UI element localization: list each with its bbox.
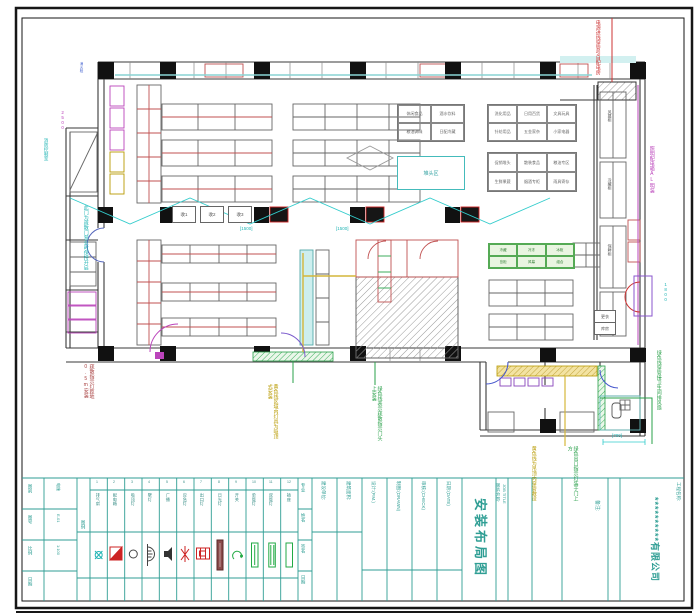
legend-name: 双管灯: [268, 493, 273, 529]
dimension-text: [1500]: [336, 226, 349, 231]
field-label: 建设单位:: [321, 481, 326, 500]
legend-no: 8: [218, 480, 220, 484]
legend-no: 3: [131, 480, 133, 484]
zone-cell: 针纺用品: [488, 123, 517, 141]
zone-cell: 日用百货: [517, 105, 546, 123]
annotation-green-right: 绿色线穿管接卫生间排风扇: [655, 350, 661, 445]
legend-name: 日光灯: [217, 493, 222, 529]
annotation-hydrant: 消火栓: [80, 62, 84, 78]
zone-cell: 散装食品: [517, 153, 546, 172]
legend-no: 2: [113, 480, 115, 484]
legend-name: 应急灯: [182, 493, 187, 529]
info-label: 比例: [28, 546, 33, 555]
annotation-yellow-a: 黄色线区域内灯具为吸顶式安装: [266, 384, 278, 442]
zone-cell: 休闲食品: [398, 105, 431, 123]
freezer-cell: 冰柜: [546, 244, 574, 256]
corridor-label: 冷藏柜: [607, 178, 612, 190]
freezer-cell: 冷藏: [489, 244, 517, 256]
service-lines: [70, 18, 652, 446]
freezer-cell: 冷冻: [517, 244, 545, 256]
annotation-dist-box: 照明配电箱AL明装: [648, 146, 654, 194]
annotation-door-note: 此门为疏散门营业时保持开启: [82, 205, 88, 273]
zone-cell: 文具玩具: [547, 105, 576, 123]
legend-no: 5: [166, 480, 168, 484]
floor-plan-canvas: [0, 0, 700, 616]
zone-cell: 烟酒专柜: [517, 172, 546, 191]
legend-no: 6: [183, 480, 185, 484]
legend-no: 10: [252, 480, 256, 484]
info-value: 电施: [55, 483, 60, 491]
field-label: 日期:(DATE): [446, 481, 451, 506]
freezer-cell: 风幕: [517, 256, 545, 268]
legend-name: 广播: [165, 493, 170, 529]
dimension-text: 1800: [663, 282, 668, 302]
zone-cell: 日配冷藏: [431, 123, 464, 141]
info-label: 图别: [28, 484, 33, 493]
zone-cell: 小家电器: [547, 123, 576, 141]
legend-no: 9: [235, 480, 237, 484]
sign-row-label: 姓名: [301, 513, 306, 522]
zone-cell: 洗化用品: [488, 105, 517, 123]
sheet-frame: [16, 8, 692, 612]
zone-cell: 促销堆头: [488, 153, 517, 172]
drawing-title: 安装布局图: [472, 498, 487, 578]
zone-cell: 粮油专区: [547, 153, 576, 172]
job-title-en: JOB TITLE: [501, 484, 506, 504]
legend-name: 配电箱: [112, 493, 117, 529]
zone-cell: 五金家杂: [517, 123, 546, 141]
field-label: 制图:(DRAWN): [396, 481, 401, 511]
annotation-yellow-b: 黄色线为吊顶内穿管敷设: [530, 446, 536, 501]
info-value: E-01: [55, 514, 60, 522]
sign-row-label: 签名: [301, 544, 306, 553]
checkout-box: 收3: [228, 206, 252, 223]
small-room-label: 库房: [594, 322, 616, 335]
annotation-green-a: 绿色线表示疏散指示门头上安装: [370, 386, 382, 444]
dimension-text: [700]: [612, 433, 622, 438]
zone-table-a: 休闲食品 酒水饮料 粮油调味 日配冷藏: [397, 104, 465, 142]
annotation-fire-room: 消防控制室: [44, 138, 49, 170]
field-label: 审核:(CHECK): [421, 481, 426, 510]
dimension-text: 2500: [60, 110, 65, 130]
cad-drawing-sheet: 休闲食品 酒水饮料 粮油调味 日配冷藏 洗化用品 日用百货 文具玩具 针纺用品 …: [0, 0, 700, 616]
legend-name: 排气扇: [95, 493, 100, 529]
field-label: 建筑面积:: [346, 481, 351, 500]
zone-cell: 粮油调味: [398, 123, 431, 141]
info-label: 日期: [28, 577, 33, 586]
legend-name: 单管灯: [251, 493, 256, 529]
title-block-grid: [22, 478, 684, 601]
checkout-box: 收2: [200, 206, 224, 223]
freezer-cell: 组合: [546, 256, 574, 268]
company-name: **********有限公司: [650, 497, 660, 582]
legend-no: 11: [269, 480, 273, 484]
sign-row-label: 专业: [301, 483, 306, 492]
zone-table-b: 洗化用品 日用百货 文具玩具 针纺用品 五金家杂 小家电器: [487, 104, 577, 142]
annotation-exit-note: 疏散指示灯距地0.5m安装: [82, 364, 94, 422]
remark-label: 备注:: [593, 500, 599, 511]
zone-cell: 酒水饮料: [431, 105, 464, 123]
zone-table-c: 促销堆头 散装食品 粮油专区 生鲜果蔬 烟酒专柜 雨具寄存: [487, 152, 577, 192]
freezer-table: 冷藏 冷冻 冰柜 岛柜 风幕 组合: [488, 243, 575, 269]
legend-no: 4: [148, 480, 150, 484]
freezer-cell: 岛柜: [489, 256, 517, 268]
info-label: 图号: [28, 515, 33, 524]
job-title-label: 图纸名称:: [495, 483, 500, 502]
checkout-box: 收1: [172, 206, 196, 223]
legend-no: 12: [287, 480, 291, 484]
dimension-text: [1500]: [240, 226, 253, 231]
legend-title: 图例: [81, 520, 86, 529]
legend-no: 1: [96, 480, 98, 484]
corridor-label: 保鲜柜: [607, 244, 612, 256]
company-label: 工程名称:: [676, 482, 681, 501]
info-value: 1:100: [55, 545, 60, 555]
stack-area: 堆头区: [397, 156, 465, 190]
zone-cell: 雨具寄存: [547, 172, 576, 191]
annotation-power-in: 电源进线穿管引自配电房: [594, 20, 600, 82]
legend-name: 插座: [286, 493, 291, 529]
annotation-green-b: 绿色出口指示灯装于门上方: [566, 446, 578, 501]
legend-name: 壁灯: [147, 493, 152, 529]
field-label: 设计:(P.M.): [371, 481, 376, 503]
legend-name: 吸顶灯: [130, 493, 135, 529]
legend-no: 7: [200, 480, 202, 484]
sign-row-label: 日期: [301, 575, 306, 584]
legend-name: 开关: [234, 493, 239, 529]
zone-cell: 生鲜果蔬: [488, 172, 517, 191]
legend-name: 出口灯: [199, 493, 204, 529]
corridor-label: 风幕柜: [607, 110, 612, 122]
